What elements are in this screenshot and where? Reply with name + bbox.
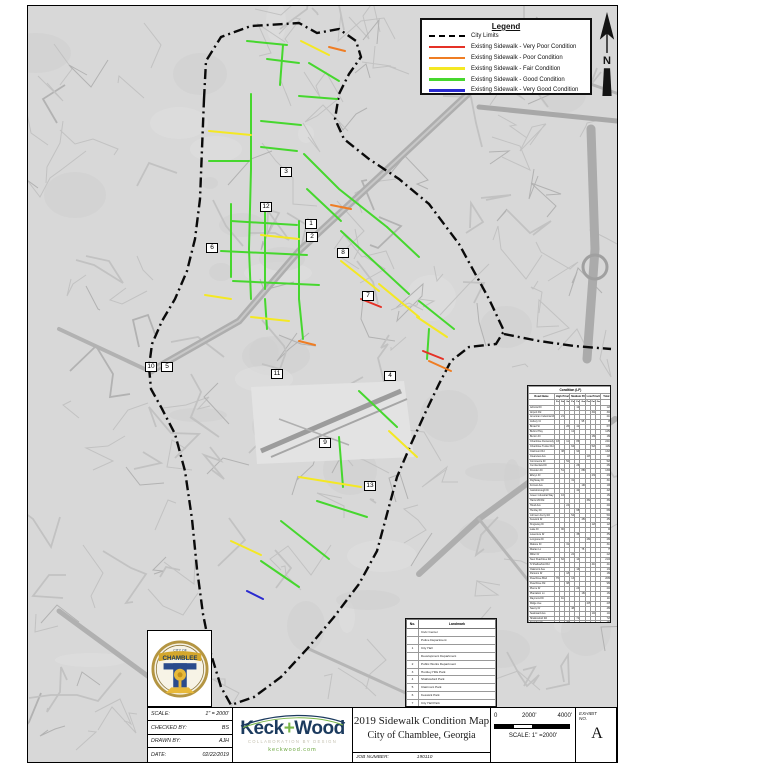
- list-item: 2Public Works Department: [407, 660, 496, 668]
- field-value: 1" = 2000': [205, 711, 229, 717]
- list-item: Police Department: [407, 636, 496, 644]
- field-label: DATE:: [151, 752, 166, 758]
- legend-item: Existing Sidewalk - Good Condition: [422, 74, 590, 85]
- title-block-fields: SCALE:1" = 2000'CHECKED BY:BSDRAWN BY:AJ…: [148, 708, 233, 762]
- map-marker-7: 7: [362, 291, 374, 301]
- job-number-label: JOB NUMBER:: [356, 755, 389, 760]
- title-block-field: DATE:02/22/2019: [148, 748, 232, 761]
- list-item: 5Clairmont Park: [407, 684, 496, 692]
- sidewalk-line-swatch-icon: [429, 89, 465, 92]
- legend-title: Legend: [422, 22, 590, 31]
- legend-item-label: City Limits: [471, 33, 499, 39]
- sidewalk-line-swatch-icon: [429, 46, 465, 49]
- north-arrow-label: N: [603, 55, 611, 67]
- landmark-table: No.LandmarkCivic CenterPolice Department…: [405, 618, 497, 707]
- table-title-row: Condition (LF): [529, 387, 612, 394]
- scale-label-4000: 4000': [558, 713, 573, 719]
- list-item: 4Shallowford Park: [407, 676, 496, 684]
- legend-item-label: Existing Sidewalk - Good Condition: [471, 77, 565, 83]
- map-marker-3: 3: [280, 167, 292, 177]
- seal-city-name: CHAMBLEE: [162, 654, 197, 661]
- legend-items: City LimitsExisting Sidewalk - Very Poor…: [422, 31, 590, 96]
- legend-item: City Limits: [422, 31, 590, 42]
- field-value: 02/22/2019: [202, 752, 229, 758]
- map-marker-11: 11: [271, 369, 283, 379]
- map-marker-12: 12: [260, 202, 272, 212]
- sidewalk-line-swatch-icon: [429, 57, 465, 60]
- field-label: CHECKED BY:: [151, 725, 187, 731]
- map-title: 2019 Sidewalk Condition Map: [353, 715, 490, 727]
- map-marker-8: 8: [337, 248, 349, 258]
- legend-item-label: Existing Sidewalk - Very Good Condition: [471, 87, 578, 93]
- base-map: [27, 5, 618, 763]
- company-website: keckwood.com: [233, 747, 352, 753]
- city-seal-box: CITY OF CHAMBLEE: [147, 630, 212, 707]
- list-item: Civic Center: [407, 629, 496, 637]
- title-block-field: CHECKED BY:BS: [148, 721, 232, 734]
- company-tagline: COLLABORATION BY DESIGN: [233, 739, 352, 744]
- scale-label-0: 0: [494, 713, 497, 719]
- airport-area: [251, 381, 414, 464]
- map-marker-4: 4: [384, 371, 396, 381]
- legend-item-label: Existing Sidewalk - Very Poor Condition: [471, 44, 576, 50]
- map-marker-13: 13: [364, 481, 376, 491]
- field-value: BS: [222, 725, 229, 731]
- map-marker-2: 2: [306, 232, 318, 242]
- list-item: 1City Hall: [407, 644, 496, 652]
- title-block-field: SCALE:1" = 2000': [148, 708, 232, 721]
- field-label: SCALE:: [151, 711, 170, 717]
- legend-item-label: Existing Sidewalk - Fair Condition: [471, 66, 560, 72]
- sidewalk-line-swatch-icon: [429, 67, 465, 70]
- exhibit-cell: EXHIBIT NO. A: [576, 708, 618, 762]
- company-logo-cell: Keck+Wood COLLABORATION BY DESIGN keckwo…: [233, 708, 353, 762]
- legend-item: Existing Sidewalk - Fair Condition: [422, 63, 590, 74]
- landmark-header-row: No.Landmark: [407, 620, 496, 629]
- legend-item-label: Existing Sidewalk - Poor Condition: [471, 55, 563, 61]
- scale-bar-cell: 0 2000' 4000' SCALE: 1" =2000': [491, 708, 576, 762]
- sidewalk-line-swatch-icon: [429, 78, 465, 81]
- list-item: 3Huntley Hills Park: [407, 668, 496, 676]
- map-sheet: [27, 5, 618, 763]
- exhibit-number: A: [576, 725, 618, 743]
- map-title-cell: 2019 Sidewalk Condition Map City of Cham…: [353, 708, 491, 762]
- logo-swoosh-icon: [233, 710, 353, 728]
- legend-item: Existing Sidewalk - Very Good Condition: [422, 85, 590, 96]
- job-number-value: 190110: [417, 755, 433, 760]
- map-marker-1: 1: [305, 219, 317, 229]
- map-marker-5: 5: [161, 362, 173, 372]
- table-row: Spalding Dr260260: [529, 621, 612, 623]
- map-marker-9: 9: [319, 438, 331, 448]
- map-subtitle: City of Chamblee, Georgia: [353, 730, 490, 741]
- exhibit-label: EXHIBIT NO.: [579, 711, 605, 721]
- list-item: 6Keswick Park: [407, 692, 496, 700]
- exhibit-sheet-page: 31212867410511913 Legend City LimitsExis…: [0, 0, 768, 768]
- city-limits-swatch-icon: [429, 35, 465, 37]
- title-block-field: DRAWN BY:AJH: [148, 735, 232, 748]
- legend-item: Existing Sidewalk - Poor Condition: [422, 53, 590, 64]
- scale-bar: [494, 724, 570, 729]
- scale-label-2000: 2000': [522, 713, 537, 719]
- north-arrow-icon: N: [596, 12, 618, 98]
- field-value: AJH: [219, 738, 229, 744]
- list-item: 7City Hall Park: [407, 700, 496, 707]
- scale-caption: SCALE: 1" =2000': [491, 733, 575, 739]
- list-item: Development Department: [407, 652, 496, 660]
- title-block: SCALE:1" = 2000'CHECKED BY:BSDRAWN BY:AJ…: [147, 707, 617, 763]
- field-label: DRAWN BY:: [151, 738, 181, 744]
- map-marker-6: 6: [206, 243, 218, 253]
- scale-bar-labels: 0 2000' 4000': [494, 713, 572, 720]
- chamblee-seal: CITY OF CHAMBLEE: [151, 634, 209, 704]
- map-marker-10: 10: [145, 362, 157, 372]
- legend-item: Existing Sidewalk - Very Poor Condition: [422, 42, 590, 53]
- job-number-row: JOB NUMBER: 190110: [353, 752, 490, 762]
- legend-box: Legend City LimitsExisting Sidewalk - Ve…: [420, 18, 592, 95]
- sidewalk-condition-table: Condition (LF)Road NameHigh PriorityMedi…: [527, 385, 611, 623]
